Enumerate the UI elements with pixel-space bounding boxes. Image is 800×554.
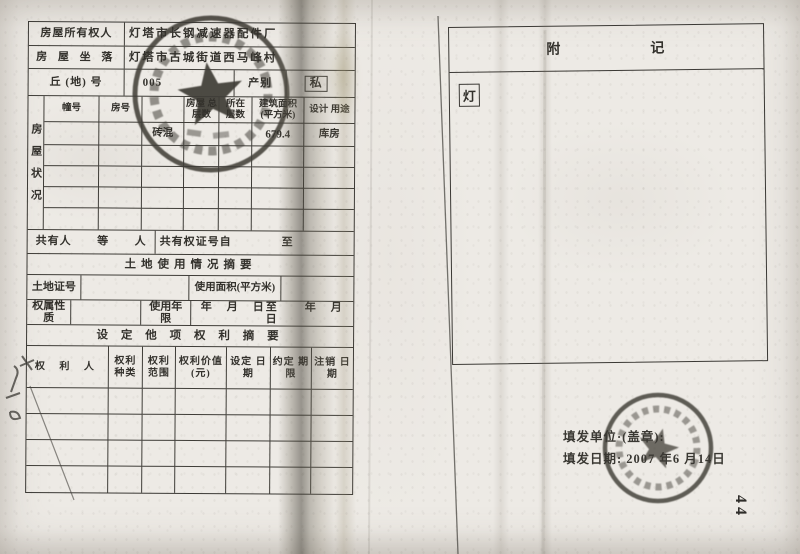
- cond-header: [142, 97, 184, 123]
- location-label: 房 屋 坐 落: [29, 46, 125, 69]
- rights-header: 权利 范围: [143, 347, 176, 389]
- rights-empty-cell: [26, 414, 108, 441]
- land-cert-label: 土地证号: [27, 275, 81, 299]
- cond-header: 建筑面积 (平方米): [252, 97, 304, 123]
- category-label: 产别: [235, 70, 287, 96]
- owner-row: 房屋所有权人 灯塔市长钢减速器配件厂: [29, 22, 355, 48]
- rights-section-title-row: 设 定 他 项 权 利 摘 要: [27, 325, 353, 348]
- rights-empty-cell: [26, 440, 108, 467]
- cond-cell: [219, 123, 252, 146]
- tenure-value: [71, 300, 141, 324]
- land-area-label: 使用面积(平方米): [189, 276, 281, 301]
- property-form-table: 房屋所有权人 灯塔市长钢减速器配件厂 房 屋 坐 落 灯塔市古城街道西马峰村 丘…: [25, 21, 356, 495]
- appendix-body: 灯: [450, 69, 768, 363]
- co-owner-cell: 共有人 等 人: [28, 230, 156, 254]
- rights-header: 权 利 人: [27, 346, 109, 389]
- issue-date-line: 填发日期: 2007 年6 月14日: [563, 449, 726, 471]
- cond-header: 所在 层数: [219, 97, 252, 123]
- cond-cell: [184, 123, 219, 146]
- lot-label: 丘 (地) 号: [29, 69, 125, 96]
- location-row: 房 屋 坐 落 灯塔市古城街道西马峰村: [29, 46, 355, 71]
- category-cell: 私: [287, 71, 355, 97]
- tenure-row: 权属性质 使用年限 年 月 日至 年 月 日: [27, 300, 353, 327]
- cond-empty-cell: [44, 187, 99, 208]
- cond-header: 幢号: [44, 96, 99, 122]
- center-crease-line: [369, 0, 372, 554]
- appendix-boxed-char: 灯: [459, 84, 480, 107]
- land-cert-row: 土地证号 使用面积(平方米): [27, 275, 353, 302]
- use-term-dates: 年 月 日至 年 月 日: [191, 301, 353, 326]
- appendix-title-left: 附: [546, 39, 562, 59]
- category-value: 私: [305, 76, 328, 91]
- issue-info: 填发单位·(盖章): 填发日期: 2007 年6 月14日: [563, 427, 726, 471]
- cond-empty-cell: [44, 145, 99, 166]
- cond-empty-cell: [44, 166, 99, 187]
- condition-side-label: 房屋状况: [28, 96, 45, 229]
- rights-section-title: 设 定 他 项 权 利 摘 要: [27, 325, 353, 347]
- cond-cell: 库房: [304, 124, 354, 147]
- appendix-title-right: 记: [650, 37, 666, 57]
- cond-cell: 679.4: [252, 123, 304, 146]
- land-cert-value: [81, 275, 189, 300]
- location-value: 灯塔市古城街道西马峰村: [125, 47, 355, 70]
- lot-value: 005: [125, 70, 235, 97]
- rights-header: 注销 日期: [312, 348, 353, 390]
- issuer-line: 填发单位·(盖章):: [563, 427, 726, 449]
- cond-empty-cell: [44, 208, 99, 229]
- scanned-property-certificate: 房屋所有权人 灯塔市长钢减速器配件厂 房 屋 坐 落 灯塔市古城街道西马峰村 丘…: [0, 0, 800, 554]
- land-area-value: [281, 277, 353, 301]
- rights-header: 约定 期限: [271, 347, 312, 389]
- rights-empty-cell: [27, 388, 109, 415]
- tenure-label: 权属性质: [27, 300, 71, 324]
- cond-header: 房号: [99, 96, 142, 122]
- land-section-title: 土地使用情况摘要: [27, 254, 353, 276]
- handwritten-page-number: 44: [731, 495, 749, 519]
- cond-cell: [99, 122, 142, 145]
- rights-header: 权利 种类: [109, 347, 143, 389]
- co-cert-cell: 共有权证号自 至: [156, 231, 354, 255]
- land-section-title-row: 土地使用情况摘要: [27, 254, 353, 277]
- owner-label: 房屋所有权人: [29, 22, 125, 46]
- cond-cell: 砖混: [142, 123, 184, 146]
- cond-header: 房屋 总层数: [184, 97, 219, 123]
- lot-row: 丘 (地) 号 005 产别 私: [29, 69, 355, 98]
- cond-header: 设计 用途: [304, 98, 354, 124]
- cond-cell: [44, 122, 99, 145]
- owner-value: 灯塔市长钢减速器配件厂: [125, 23, 355, 47]
- condition-section: 房屋状况 幢号 房号 房屋 总层数 所在 层数 建筑面积 (平方米) 设计 用途…: [28, 96, 355, 232]
- condition-grid: 幢号 房号 房屋 总层数 所在 层数 建筑面积 (平方米) 设计 用途 砖混 6…: [44, 96, 355, 231]
- appendix-box: 附 记 灯: [448, 23, 768, 365]
- co-owner-row: 共有人 等 人 共有权证号自 至: [28, 230, 354, 256]
- rights-empty-cell: [26, 466, 108, 493]
- use-term-label: 使用年限: [141, 301, 191, 325]
- appendix-header: 附 记: [449, 24, 764, 73]
- rights-header: 权利价值 (元): [176, 347, 227, 389]
- rights-header: 设定 日期: [227, 347, 271, 389]
- rights-grid: 权 利 人 权利 种类 权利 范围 权利价值 (元) 设定 日期 约定 期限 注…: [26, 346, 353, 494]
